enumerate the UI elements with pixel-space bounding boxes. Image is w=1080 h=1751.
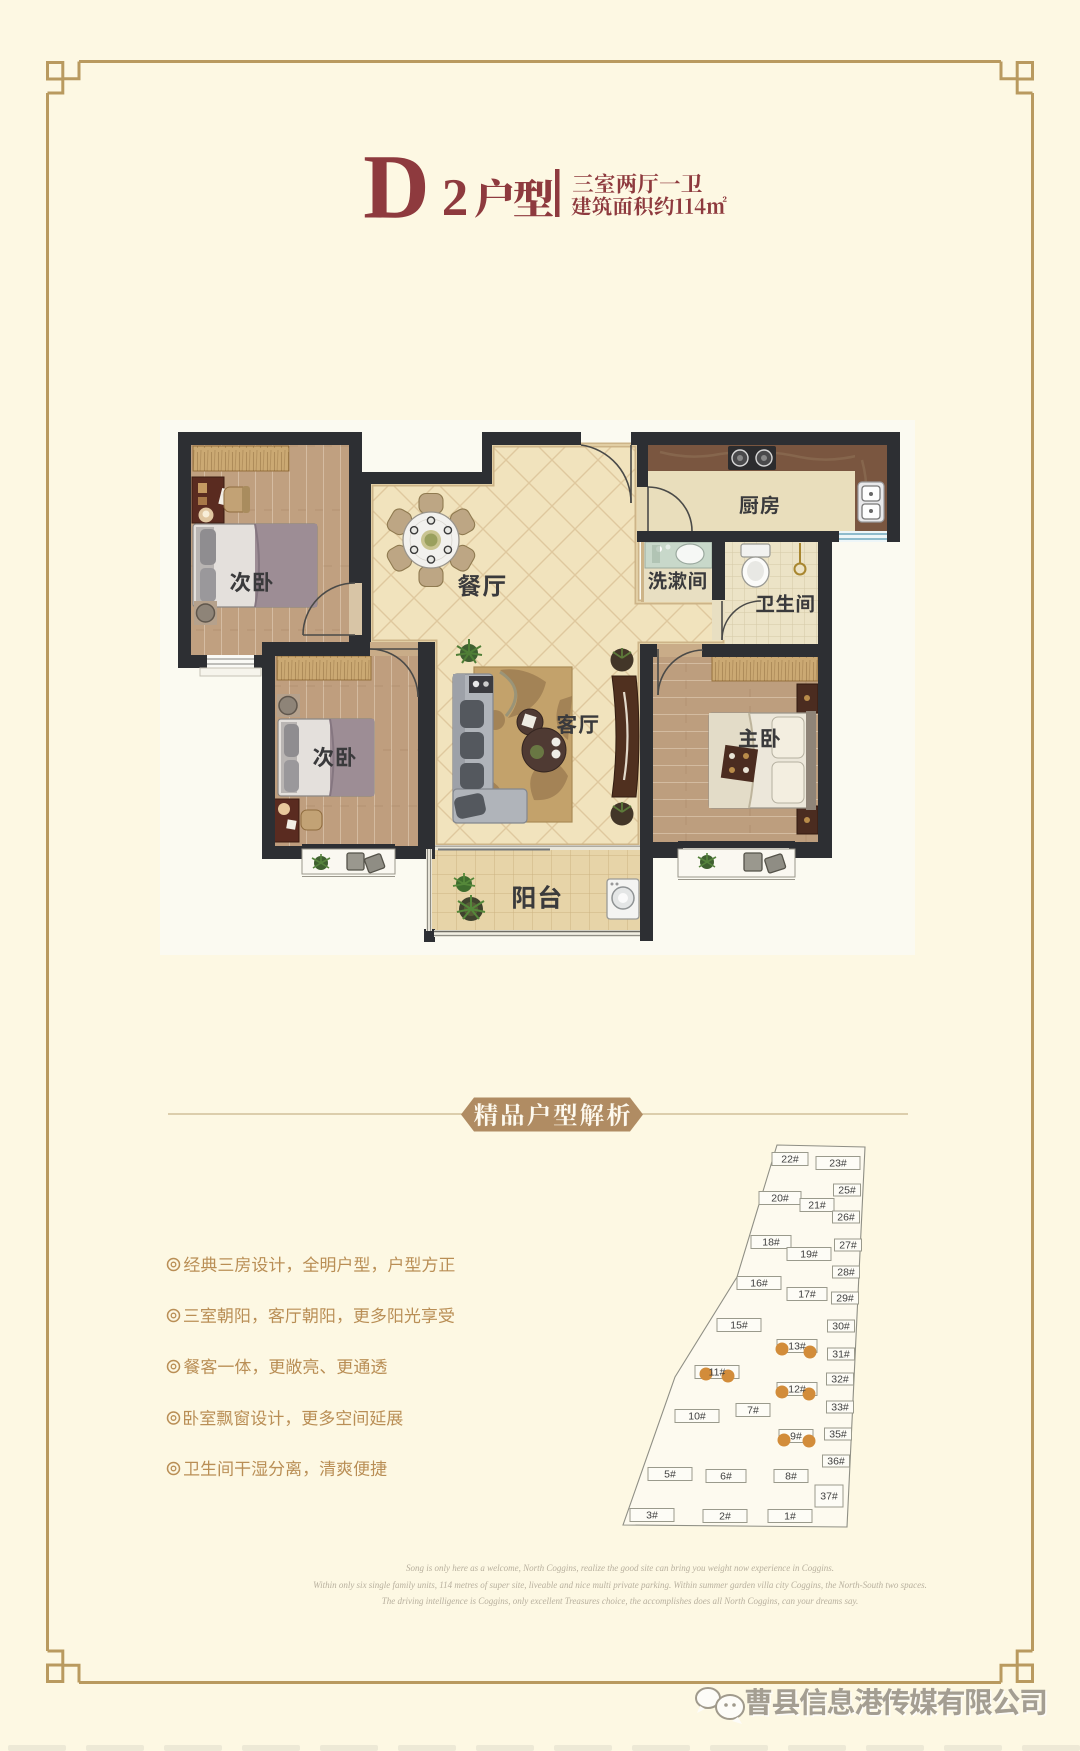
svg-text:35#: 35# bbox=[829, 1429, 847, 1441]
svg-text:20#: 20# bbox=[771, 1193, 789, 1205]
svg-text:8#: 8# bbox=[785, 1471, 797, 1483]
svg-text:11#: 11# bbox=[709, 1367, 726, 1379]
svg-text:32#: 32# bbox=[831, 1374, 849, 1386]
svg-text:5#: 5# bbox=[664, 1469, 676, 1481]
svg-text:2#: 2# bbox=[719, 1511, 731, 1523]
svg-text:18#: 18# bbox=[762, 1237, 780, 1249]
svg-text:28#: 28# bbox=[837, 1267, 855, 1279]
svg-text:23#: 23# bbox=[829, 1158, 847, 1170]
svg-text:1#: 1# bbox=[784, 1511, 796, 1523]
svg-text:13#: 13# bbox=[788, 1341, 806, 1353]
svg-text:16#: 16# bbox=[750, 1278, 768, 1290]
svg-text:3#: 3# bbox=[646, 1510, 658, 1522]
svg-text:6#: 6# bbox=[720, 1471, 732, 1483]
svg-text:30#: 30# bbox=[832, 1321, 850, 1333]
svg-text:7#: 7# bbox=[747, 1405, 759, 1417]
svg-text:Within only six single family: Within only six single family units, 114… bbox=[313, 1580, 927, 1590]
svg-text:19#: 19# bbox=[800, 1249, 818, 1261]
svg-text:Song is only here as a welcome: Song is only here as a welcome, North Co… bbox=[406, 1563, 834, 1573]
svg-text:29#: 29# bbox=[836, 1293, 854, 1305]
svg-text:25#: 25# bbox=[838, 1185, 856, 1197]
svg-text:21#: 21# bbox=[808, 1200, 826, 1212]
svg-text:27#: 27# bbox=[839, 1240, 857, 1252]
svg-text:10#: 10# bbox=[688, 1411, 706, 1423]
svg-text:17#: 17# bbox=[798, 1289, 816, 1301]
svg-text:The driving intelligence is Co: The driving intelligence is Coggins, onl… bbox=[382, 1596, 858, 1606]
svg-text:22#: 22# bbox=[781, 1154, 799, 1166]
svg-text:15#: 15# bbox=[730, 1320, 748, 1332]
svg-text:26#: 26# bbox=[837, 1212, 855, 1224]
svg-text:9#: 9# bbox=[790, 1431, 802, 1443]
svg-text:31#: 31# bbox=[832, 1349, 850, 1361]
svg-text:36#: 36# bbox=[827, 1456, 845, 1468]
svg-text:33#: 33# bbox=[831, 1402, 849, 1414]
svg-text:12#: 12# bbox=[788, 1384, 806, 1396]
svg-text:37#: 37# bbox=[820, 1491, 838, 1503]
